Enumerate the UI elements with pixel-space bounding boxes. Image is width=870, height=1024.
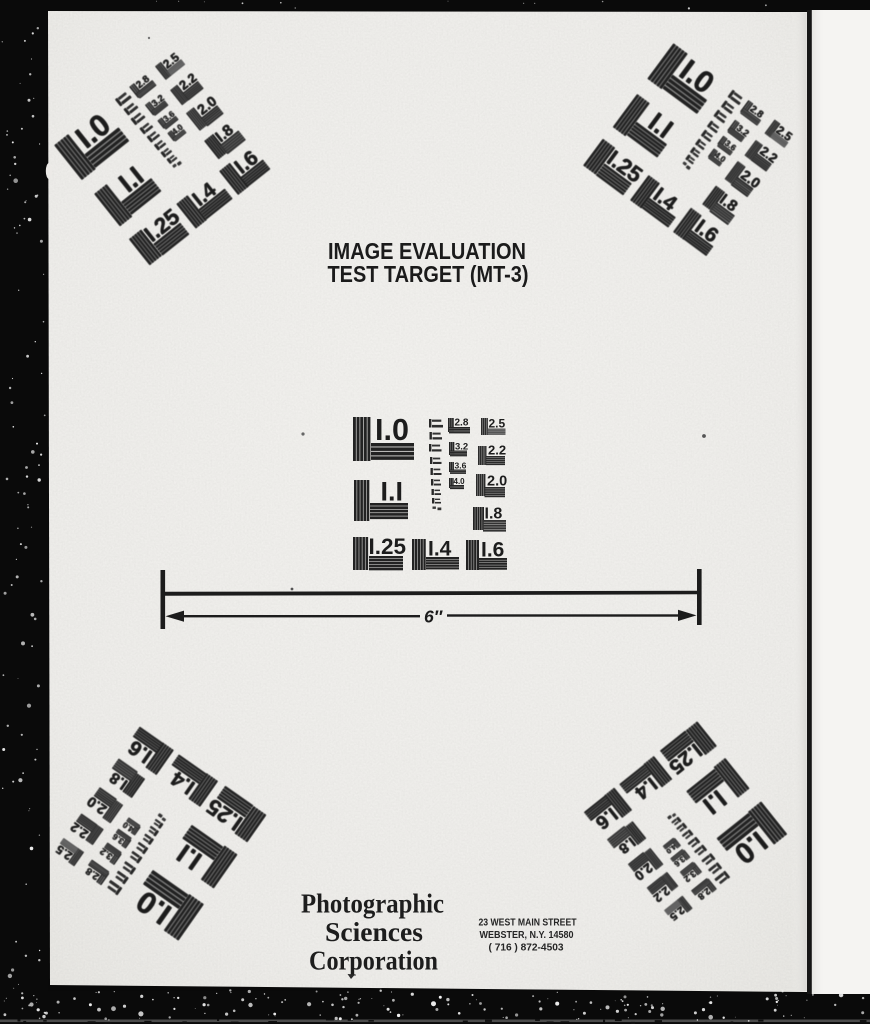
svg-text:Corporation: Corporation	[309, 945, 438, 976]
svg-text:WEBSTER, N.Y. 14580: WEBSTER, N.Y. 14580	[480, 930, 574, 941]
svg-text:TEST TARGET (MT-3): TEST TARGET (MT-3)	[328, 261, 529, 287]
svg-text:23 WEST MAIN STREET: 23 WEST MAIN STREET	[479, 918, 577, 929]
svg-text:Sciences: Sciences	[325, 916, 423, 947]
svg-text:6″: 6″	[424, 607, 443, 627]
svg-text:( 716 ) 872-4503: ( 716 ) 872-4503	[489, 942, 565, 953]
svg-text:Photographic: Photographic	[301, 888, 444, 919]
